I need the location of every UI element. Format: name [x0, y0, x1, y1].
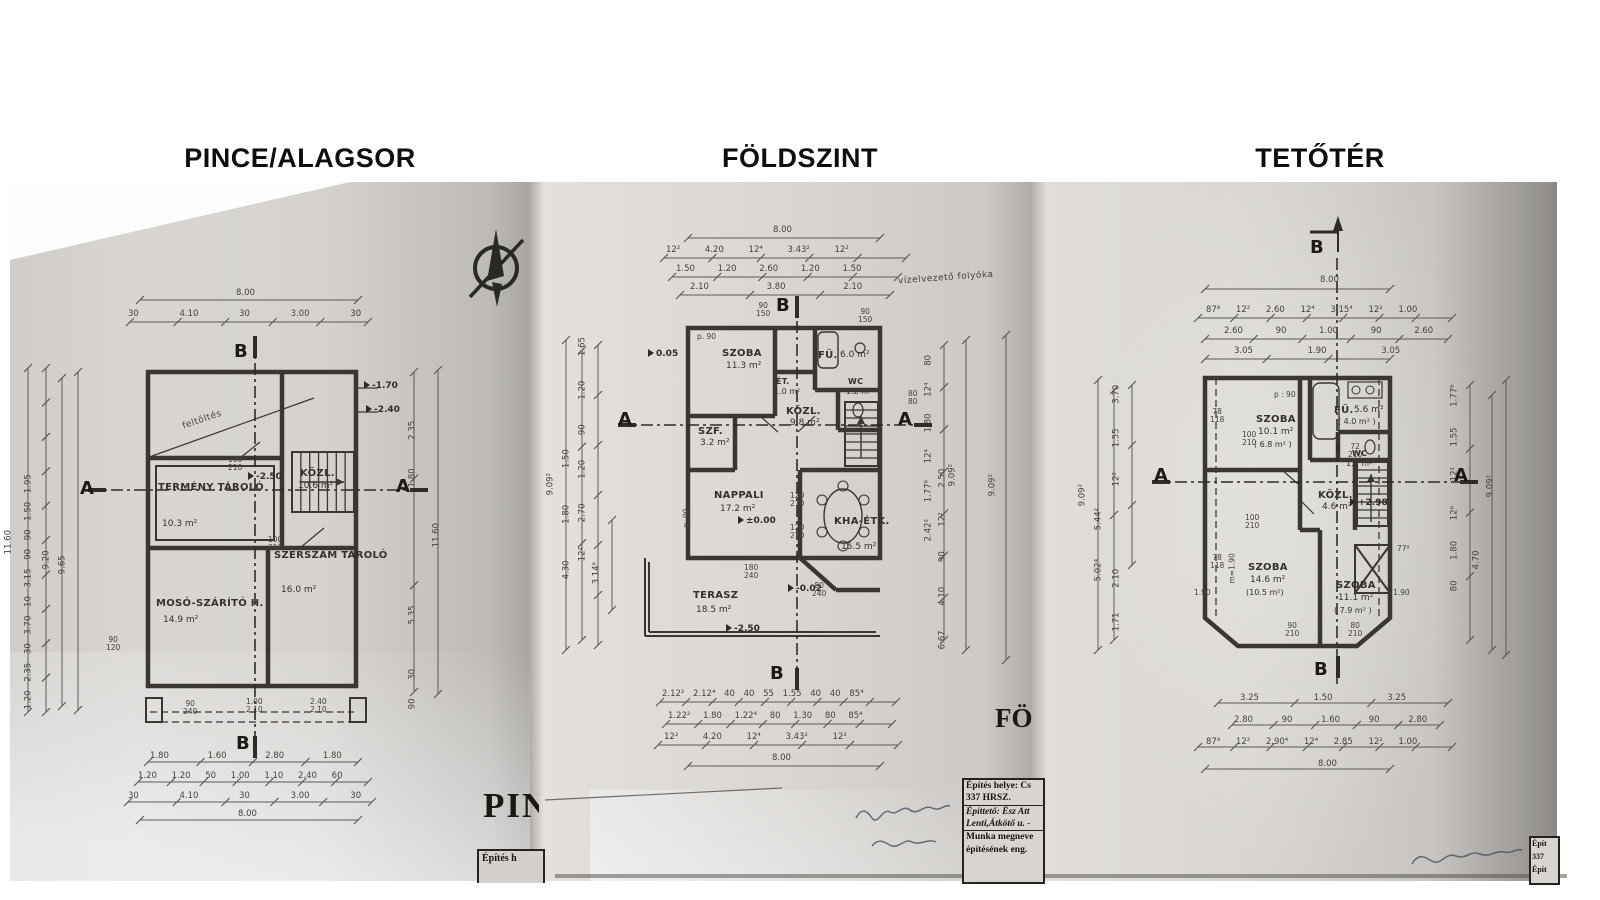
room-label: NAPPALI — [714, 490, 764, 501]
dim-chain: 87⁸ 12² 2.90⁴ 12⁴ 2.85 12² 1.00 — [1206, 738, 1417, 747]
room-area: 6.0 m² — [840, 351, 870, 361]
stamp-line: Épít — [1531, 864, 1558, 877]
room-area: 17.2 m² — [720, 505, 755, 515]
room-label: TERASZ — [693, 590, 738, 601]
handwritten-signature — [1412, 850, 1522, 864]
stamp-line: Építés helye: Cs — [964, 780, 1043, 792]
room-label: MOSÓ-SZÁRÍTÓ H. — [156, 598, 264, 609]
dim-tag: 1.90 — [1393, 589, 1410, 597]
dim-chain: 6.67 4.10 90 12² 2.50 — [939, 469, 948, 650]
annotation: m=1.90 — [1229, 553, 1237, 583]
door-size-tag: p. 90 — [683, 508, 691, 527]
room-area: 3.2 m² — [700, 439, 730, 449]
section-marker-b: B — [236, 734, 250, 754]
room-label: WC — [848, 378, 863, 387]
section-marker-b: B — [1314, 660, 1328, 680]
dim-chain: 12² 4.20 12⁴ 3.43² 12² — [666, 246, 849, 255]
level-mark: -1.70 — [364, 381, 398, 392]
floor-title-basement: PINCE/ALAGSOR — [170, 143, 430, 174]
handwritten-signature — [856, 806, 950, 847]
room-area-reduced: ( 4.0 m² ) — [1338, 418, 1376, 427]
section-marker-a: A — [80, 479, 94, 499]
window-size-tag: 90 150 — [858, 308, 872, 323]
dim-chain: 8.00 — [238, 810, 257, 819]
ground-floor-plan-linework — [645, 328, 880, 636]
dim-chain: 5.02⁴ 5.44² — [1095, 508, 1104, 581]
section-marker-a: A — [1154, 466, 1168, 486]
section-marker-a: A — [618, 410, 632, 430]
dim-chain: 9.09² — [547, 473, 556, 495]
room-label: SZF. — [698, 426, 723, 437]
partial-sheet-title-middle: FÖ — [995, 703, 1033, 734]
stamp-line: Munka megneve — [964, 830, 1043, 843]
stamp-line: 337 — [1531, 851, 1558, 864]
door-size-tag: 2.40 2.10 — [310, 698, 327, 713]
stamp-line: Építtető: Ész Att — [964, 805, 1043, 818]
room-label: KÖZL. — [786, 406, 821, 417]
dim-chain: 9.65 — [59, 555, 68, 574]
room-area: 10.3 m² — [162, 520, 197, 530]
floor-title-ground: FÖLDSZINT — [670, 143, 930, 174]
dim-chain: 8.00 — [236, 289, 255, 298]
title-block-left: Építés h — [477, 849, 545, 883]
room-label: KÖZL. — [300, 468, 335, 479]
stamp-line: Lenti,Átkötő u. - — [964, 818, 1043, 830]
dim-chain: 1.50 1.20 2.60 1.20 1.50 — [676, 265, 861, 274]
dim-chain: 30 4.10 30 3.00 30 — [128, 310, 361, 319]
stamp-line: Épít — [1531, 838, 1558, 851]
dim-chain: 9.20 — [43, 550, 52, 569]
dim-chain: 3.25 1.50 3.25 — [1240, 694, 1406, 703]
door-size-tag: 1.00 2.10 — [246, 698, 263, 713]
section-marker-b: B — [776, 296, 790, 316]
dim-chain: 87⁸ 12² 2.60 12⁴ 3.15⁴ 12² 1.00 — [1206, 306, 1417, 315]
dim-chain: 9.09² — [1079, 484, 1088, 506]
basement-plan-linework — [146, 372, 366, 722]
dim-chain: 11.60 — [433, 523, 442, 547]
door-size-tag: 80 240 — [812, 582, 826, 597]
section-marker-b: B — [1310, 238, 1324, 258]
wall-size-tag: 78 118 — [1210, 554, 1224, 569]
door-size-tag: 90 240 — [183, 700, 197, 715]
dim-tag: 80 80 — [908, 390, 918, 405]
room-label: SZOBA — [1336, 580, 1376, 591]
room-area: 1.0 m² — [774, 388, 800, 397]
room-area-reduced: (10.5 m²) — [1246, 589, 1284, 598]
dim-chain: 1.20 1.20 50 1.00 1.10 2.40 60 — [138, 772, 342, 781]
dim-chain: 5.35 — [409, 605, 418, 624]
room-area: 11.3 m² — [726, 362, 761, 372]
room-label: SZOBA — [1256, 414, 1296, 425]
dim-chain: 12² 1.55 3.70 — [1113, 385, 1122, 486]
dim-chain: 4.30 1.80 1.50 — [563, 449, 572, 579]
room-label: KÖZL. — [1318, 490, 1353, 501]
room-area: 11.1 m² — [1338, 594, 1373, 604]
dim-chain: 2.80 90 1.60 90 2.80 — [1234, 716, 1427, 725]
room-label: ÉT. — [776, 378, 790, 387]
dim-chain: 12² 2.70 1.20 90 1.20 1.65 — [579, 337, 588, 561]
room-label: TERMÉNY TÁROLÓ — [158, 482, 232, 493]
room-area: 5.6 m² — [1354, 406, 1384, 416]
dim-chain: 90 30 — [409, 669, 418, 709]
wall-size-tag: 78 118 — [1210, 408, 1224, 423]
dim-chain: 1.22² 1.80 1.22⁴ 80 1.30 80 85⁴ — [668, 712, 863, 721]
section-marker-b: B — [234, 342, 248, 362]
room-label: KHA-ÉTK. — [834, 516, 890, 527]
floor-title-attic: TETŐTÉR — [1190, 143, 1450, 174]
door-size-tag: 120 210 — [790, 524, 804, 539]
door-size-tag: 90 120 — [106, 636, 120, 651]
room-label: SZERSZÁM TÁROLÓ — [274, 550, 358, 561]
level-mark: 0.05 — [648, 349, 678, 360]
room-area: 14.6 m² — [1250, 576, 1285, 586]
dim-chain: 1.71 2.10 — [1113, 569, 1122, 632]
room-area-reduced: ( 7.9 m² ) — [1334, 607, 1372, 616]
section-marker-a: A — [898, 410, 912, 430]
door-size-tag: 120 210 — [790, 492, 804, 507]
door-size-tag: 90 210 — [1285, 622, 1299, 637]
dim-chain: 9.09² — [949, 464, 958, 486]
dim-chain: 8.00 — [773, 226, 792, 235]
stamp-line: építésének eng. — [964, 844, 1043, 856]
stamp-line: Építés h — [479, 851, 543, 867]
dim-chain: 80 1.80 12⁶ — [1451, 506, 1460, 591]
room-label: FÜ. — [818, 350, 838, 361]
room-area: 10.6 m² — [298, 482, 333, 492]
room-area: 9.8 m² — [790, 419, 820, 429]
dim-chain: 8.00 — [772, 754, 791, 763]
dim-chain: 1.80 2.35 — [409, 421, 418, 488]
door-size-tag: 100 210 — [228, 456, 242, 471]
stamp-line: 337 HRSZ. — [964, 792, 1043, 804]
dim-chain: 1.20 2.35 30 3.70 10 3.15 90 90 1.50 1.9… — [25, 474, 34, 709]
dim-chain: 2.10 3.80 2.10 — [690, 283, 862, 292]
room-area: 1.2 m² — [846, 388, 872, 397]
partial-sheet-title-left: PIN — [483, 786, 539, 826]
door-size-tag: 72 210 — [1348, 443, 1362, 458]
section-marker-b: B — [770, 664, 784, 684]
dim-tag: 77⁸ — [1397, 545, 1410, 553]
dim-chain: 4.70 — [1473, 550, 1482, 569]
level-mark: ±0.00 — [738, 516, 776, 527]
dim-chain: 9.09² — [989, 474, 998, 496]
room-area: 18.5 m² — [696, 606, 731, 616]
dim-chain: 8.00 — [1318, 760, 1337, 769]
room-area: 16.0 m² — [281, 586, 316, 596]
room-label: FÜ. — [1334, 405, 1354, 416]
room-area: 1.1 m² — [1346, 460, 1372, 469]
dim-chain: 2.12² 2.12⁴ 40 40 55 1.55 40 40 85⁴ — [662, 690, 864, 699]
dim-chain: 9.09² — [1487, 475, 1496, 497]
room-area: 14.9 m² — [163, 616, 198, 626]
dim-chain: 8.00 — [1320, 276, 1339, 285]
room-area: 15.5 m² — [841, 543, 876, 553]
dim-chain: 3.14⁶ — [593, 562, 602, 584]
title-block-right: Épít 337 Épít — [1529, 836, 1560, 885]
room-area: 4.6 m² — [1322, 503, 1352, 513]
door-size-tag: 100 210 — [1245, 514, 1259, 529]
dim-chain: 2.60 90 1.00 90 2.60 — [1224, 327, 1433, 336]
door-size-tag: 100 210 — [1242, 431, 1256, 446]
level-mark: -2.40 — [366, 405, 400, 416]
dim-chain: 3.05 1.90 3.05 — [1234, 347, 1400, 356]
section-marker-a: A — [396, 477, 410, 497]
door-size-tag: p : 90 — [1274, 391, 1296, 399]
level-mark: +2.98 — [1350, 498, 1388, 509]
sheet-frame-line — [545, 788, 782, 800]
room-area-reduced: ( 6.8 m² ) — [1254, 441, 1292, 450]
room-label: SZOBA — [1248, 562, 1288, 573]
door-size-tag: 100 210 — [268, 536, 282, 551]
dim-chain: 12² 4.20 12⁴ 3.43² 12² — [664, 733, 847, 742]
dim-chain: 2.42² 1.77⁶ 12⁴ 1.80 12⁴ 80 — [925, 355, 934, 541]
window-size-tag: 90 150 — [756, 302, 770, 317]
level-mark: -2.50 — [726, 624, 760, 635]
door-size-tag: 80 210 — [1348, 622, 1362, 637]
level-mark: -2.50 — [248, 472, 282, 483]
door-size-tag: 180 240 — [744, 564, 758, 579]
room-area: 10.1 m² — [1258, 428, 1293, 438]
title-block-middle: Építés helye: Cs 337 HRSZ. Építtető: Ész… — [962, 778, 1045, 884]
dim-chain: 11.60 — [5, 530, 14, 554]
door-size-tag: p. 90 — [697, 333, 716, 341]
dim-chain: 30 4.10 30 3.00 30 — [128, 792, 361, 801]
compass-north-icon — [470, 229, 523, 307]
room-label: SZOBA — [722, 348, 762, 359]
section-marker-a: A — [1454, 466, 1468, 486]
dim-tag: 1.90 — [1194, 589, 1211, 597]
